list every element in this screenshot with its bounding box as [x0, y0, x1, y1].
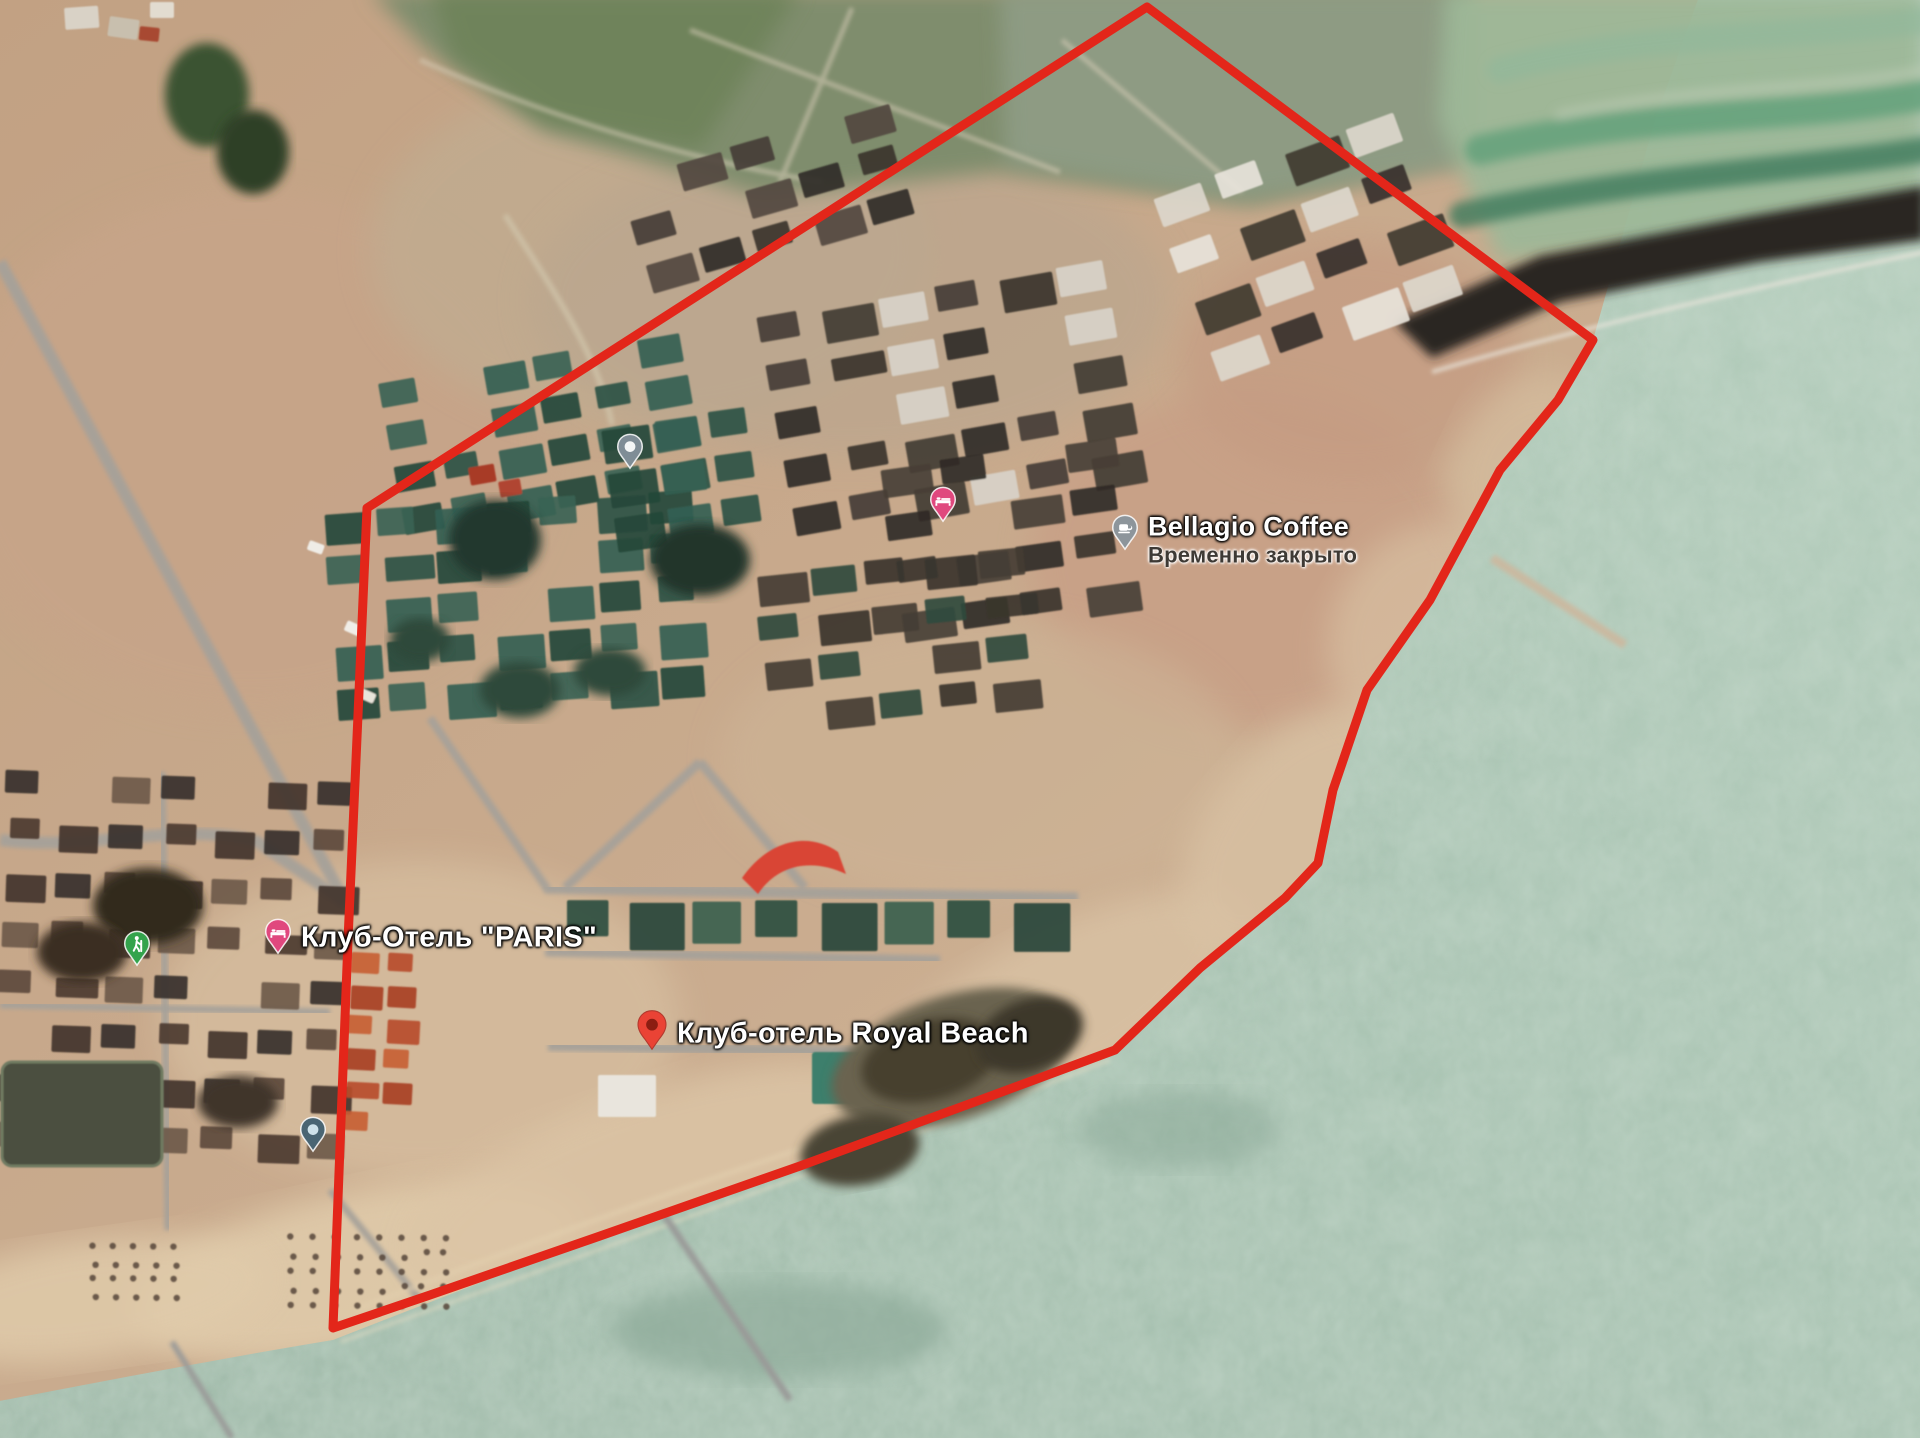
bellagio-coffee-label-text: Bellagio Coffee [1148, 512, 1357, 543]
klub-otel-paris-label[interactable]: Клуб-Отель "PARIS" [301, 922, 597, 955]
pin-shape [636, 1009, 668, 1055]
klub-otel-paris-label-text: Клуб-Отель "PARIS" [301, 922, 597, 955]
poi-layer: Париж-2 Клуб отель ПалмБич Иссык Куль Be… [0, 0, 1920, 1438]
sektor-c20-pin-icon[interactable] [123, 930, 151, 975]
pin-shape [616, 433, 644, 473]
bellagio-coffee-pin-icon[interactable] [1111, 514, 1139, 559]
pin-shape [299, 1116, 327, 1156]
klub-otel-paris-pin-icon[interactable] [264, 918, 292, 963]
bellagio-coffee-status: Временно закрыто [1148, 543, 1357, 569]
map-canvas[interactable]: Париж-2 Клуб отель ПалмБич Иссык Куль Be… [0, 0, 1920, 1438]
royal-beach-label[interactable]: Клуб-отель Royal Beach [677, 1018, 1029, 1051]
pin-shape [1111, 514, 1139, 554]
pin-shape [264, 918, 292, 958]
royal-beach-label-text: Клуб-отель Royal Beach [677, 1018, 1029, 1051]
royal-beach-pin-icon[interactable] [636, 1009, 668, 1060]
bellagio-coffee-label[interactable]: Bellagio CoffeeВременно закрыто [1148, 512, 1357, 569]
pin-shape [123, 930, 151, 970]
parizh-pin-icon[interactable] [299, 1116, 327, 1161]
pin-shape [929, 486, 957, 526]
parizh-2-pin-icon[interactable] [616, 433, 644, 478]
palm-beach-hotel-pin-icon[interactable] [929, 486, 957, 531]
